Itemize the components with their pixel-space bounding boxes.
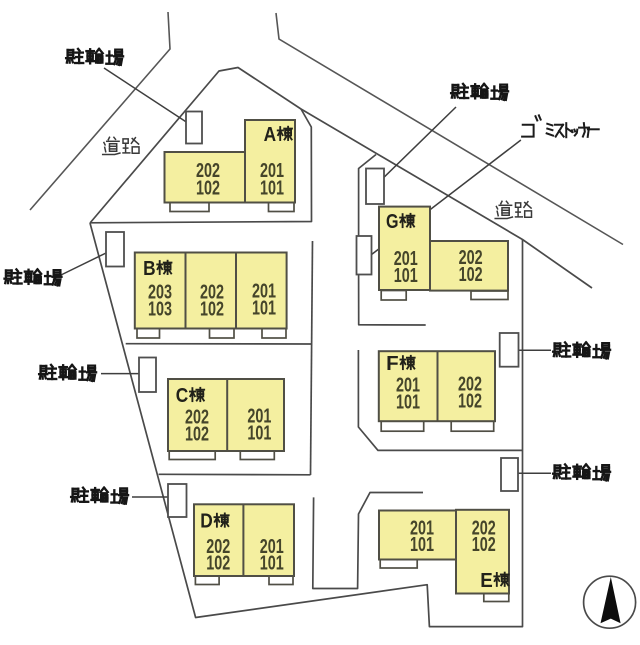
svg-text:102: 102 xyxy=(458,390,482,412)
svg-text:102: 102 xyxy=(472,534,496,556)
svg-text:101: 101 xyxy=(260,553,284,575)
svg-text:103: 103 xyxy=(148,299,172,321)
svg-text:102: 102 xyxy=(459,264,483,286)
svg-text:A: A xyxy=(264,124,277,146)
svg-text:102: 102 xyxy=(206,553,230,575)
svg-text:101: 101 xyxy=(394,265,418,287)
svg-text:C: C xyxy=(176,385,189,407)
svg-text:101: 101 xyxy=(410,534,434,556)
svg-text:E: E xyxy=(480,570,493,592)
svg-text:F: F xyxy=(386,353,399,375)
svg-text:G: G xyxy=(386,211,399,233)
svg-text:101: 101 xyxy=(247,423,271,445)
svg-text:101: 101 xyxy=(396,391,420,413)
svg-text:102: 102 xyxy=(196,177,220,199)
svg-text:101: 101 xyxy=(260,177,284,199)
svg-text:B: B xyxy=(143,258,156,280)
svg-text:D: D xyxy=(200,511,213,533)
svg-text:101: 101 xyxy=(252,298,276,320)
svg-text:102: 102 xyxy=(185,424,209,446)
svg-text:102: 102 xyxy=(200,299,224,321)
